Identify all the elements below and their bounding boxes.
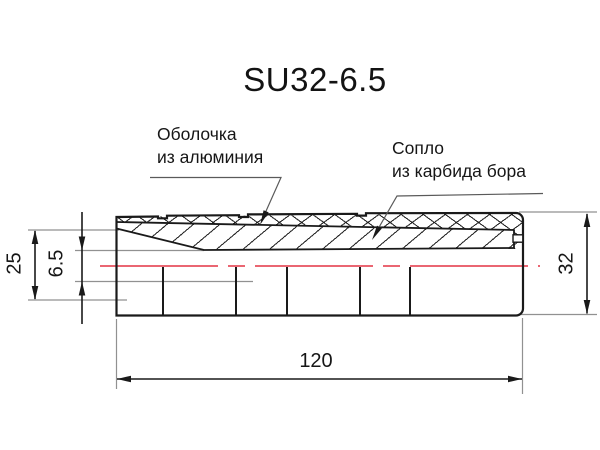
segment-joint-lines — [163, 267, 410, 315]
drawing-sheet: SU32-6.5 Оболочка из алюминия Сопло из к… — [0, 0, 600, 450]
dim-text-inlet-diameter: 25 — [4, 246, 27, 282]
label-nozzle-line2: из карбида бора — [392, 160, 526, 183]
dimension-32 — [584, 213, 591, 314]
label-shell: Оболочка из алюминия — [157, 123, 263, 169]
bore-profile — [117, 229, 515, 251]
label-shell-line2: из алюминия — [157, 146, 263, 169]
drawing-title: SU32-6.5 — [115, 61, 515, 99]
end-notch — [513, 235, 523, 242]
dimension-25 — [32, 230, 39, 300]
dim-text-length: 120 — [285, 350, 347, 373]
label-nozzle-line1: Сопло — [392, 137, 526, 160]
shell-nozzle-boundary — [117, 222, 515, 230]
dimension-6-5 — [79, 212, 86, 324]
dim-text-bore-diameter: 6.5 — [46, 243, 69, 285]
leader-shell-arrow — [260, 210, 269, 225]
label-shell-line1: Оболочка — [157, 123, 263, 146]
dimension-120 — [117, 376, 522, 383]
leader-nozzle — [372, 194, 543, 241]
part-outline — [117, 213, 524, 316]
leader-shell — [150, 178, 281, 226]
dim-text-outer-diameter: 32 — [556, 244, 579, 284]
label-nozzle: Сопло из карбида бора — [392, 137, 526, 183]
